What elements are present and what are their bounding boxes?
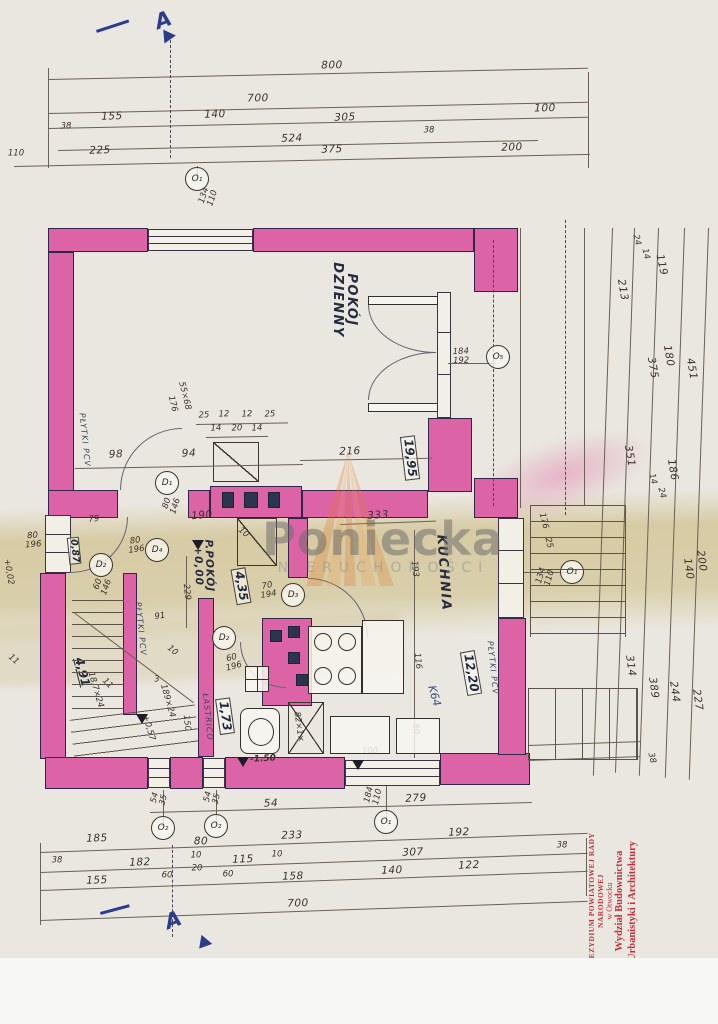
dimension-line <box>48 102 588 114</box>
plan-label: 54 35 <box>150 792 170 807</box>
plan-label: 227 <box>690 689 704 712</box>
wall <box>170 757 203 789</box>
plan-label: 14 <box>639 248 651 261</box>
sink <box>245 666 269 692</box>
plan-label: 800 <box>321 60 343 72</box>
plan-label: 14 <box>251 424 262 434</box>
plan-label: 54 <box>264 798 279 810</box>
porch-steps <box>528 688 638 760</box>
plan-label: 184 192 <box>453 348 470 367</box>
camscanner-footer: CS Zeskanowane w CamScanner <box>0 958 718 1024</box>
official-stamp: PREZYDIUM POWIATOWEJ RADY NARODOWEJ w Ot… <box>588 821 648 981</box>
plan-label: 91 <box>154 612 166 623</box>
stove-burner-icon <box>338 667 356 685</box>
plan-label: 1,73 <box>215 697 235 734</box>
plan-label: 54 35 <box>203 791 223 806</box>
plan-label: 186 <box>665 458 680 481</box>
plan-label: +0,02 <box>1 558 15 585</box>
stamp-line-4: Urbanistyki i Architektury <box>627 821 639 981</box>
wall <box>440 753 530 785</box>
kitchen-table <box>330 716 390 754</box>
plan-label: PŁYTKI PCV <box>485 641 499 696</box>
dimension-line <box>40 901 588 921</box>
dimension-line <box>40 833 588 853</box>
opening-symbol: O₁ <box>374 810 398 834</box>
opening-symbol: D₁ <box>155 471 179 495</box>
opening-symbol: D₂ <box>89 553 113 577</box>
chimney-flue <box>244 492 258 508</box>
stove-burner-icon <box>314 667 332 685</box>
chimney-flue <box>270 630 282 642</box>
kitchen-counter <box>362 620 404 694</box>
plan-label: 200 <box>501 142 523 154</box>
stove <box>308 626 362 694</box>
opening-symbol: O₂ <box>151 816 175 840</box>
plan-label: 192 <box>448 827 470 839</box>
opening-symbol: D₄ <box>145 538 169 562</box>
opening-symbol: O₅ <box>486 345 510 369</box>
plan-label: -1.50 <box>250 754 276 765</box>
dimension-line <box>206 436 268 438</box>
wall <box>428 418 472 492</box>
chimney-flue <box>288 652 300 664</box>
door-swing-arc <box>368 352 436 400</box>
dimension-line <box>40 853 588 873</box>
kitchen-table-2 <box>396 718 440 754</box>
plan-label: 12 <box>241 410 252 420</box>
plan-label: 4,35 <box>231 567 252 605</box>
plan-label: 80 196 <box>127 536 146 556</box>
plan-label: 140 <box>381 865 403 877</box>
plan-label: 25 <box>198 411 209 421</box>
plan-label: PŁYTKI PCV <box>77 413 91 468</box>
wall <box>123 573 137 715</box>
plan-label: 351 <box>622 444 637 467</box>
plan-label: 60 196 <box>223 652 243 674</box>
stove-burner-icon <box>314 633 332 651</box>
plan-label: 229 <box>181 583 192 600</box>
wall <box>48 252 74 514</box>
plan-label: 140 <box>681 558 695 581</box>
plan-label: 10 <box>165 644 179 658</box>
plan-label: 116 <box>412 652 423 669</box>
plan-label: 100 <box>534 103 556 115</box>
plan-label: 115 <box>232 854 254 866</box>
dimension-line <box>48 117 588 129</box>
dimension-line-vertical <box>493 240 495 506</box>
chimney-flue <box>222 492 234 508</box>
plan-label: 12,20 <box>460 650 482 696</box>
plan-label: 60 146 <box>92 575 115 597</box>
plan-label: 80 146 <box>161 494 183 515</box>
plan-label: 200 <box>694 550 708 573</box>
plan-label: 225 <box>89 145 111 157</box>
plan-label: 190 <box>191 509 213 522</box>
plan-label: 25 <box>264 410 275 420</box>
plan-label: 10 <box>272 850 283 859</box>
door-swing-arc <box>368 305 436 353</box>
plan-label: 213 <box>615 278 630 301</box>
plan-label: 38 <box>424 126 435 135</box>
plan-label: 98 <box>109 449 124 461</box>
plan-label: 244 <box>667 681 681 704</box>
stamp-line-1: PREZYDIUM POWIATOWEJ RADY NARODOWEJ <box>588 821 605 981</box>
plan-label: 314 <box>623 655 637 678</box>
plan-label: POKÓJ DZIENNY <box>330 262 358 338</box>
opening-symbol: O₂ <box>204 814 228 838</box>
plan-label: K64 <box>425 684 442 708</box>
plan-label: 60 <box>162 871 173 880</box>
chimney-flue <box>268 492 280 508</box>
plan-label: 38 <box>61 122 72 131</box>
dimension-line <box>150 802 532 813</box>
plan-label: P.POKÓJ +0,00 <box>191 539 215 593</box>
plan-label: 122 <box>458 860 480 872</box>
opening-symbol: O₁ <box>185 167 209 191</box>
toilet <box>240 708 280 754</box>
plan-label: 38 <box>557 841 568 850</box>
plan-label: 700 <box>247 93 269 105</box>
wall <box>253 228 474 252</box>
chimney-flue <box>296 674 308 686</box>
plan-label: 11 <box>6 653 20 667</box>
dimension-line <box>48 68 588 80</box>
plan-label: 184 110 <box>363 786 385 806</box>
plan-label: 279 <box>405 793 427 805</box>
plan-label: 700 <box>287 898 309 910</box>
plan-label: 305 <box>334 112 356 124</box>
wall <box>40 573 66 759</box>
window <box>437 292 451 418</box>
level-marker-icon <box>352 760 364 770</box>
plan-label: 233 <box>281 830 303 842</box>
plan-label: 38 <box>52 856 63 865</box>
plan-label: 3 <box>154 675 160 685</box>
wall <box>48 490 118 518</box>
plan-label: 79 <box>88 515 100 525</box>
dimension-line-vertical <box>520 228 521 508</box>
plan-label: 110 <box>8 149 24 158</box>
dimension-line-vertical <box>170 40 172 158</box>
plan-label: 182 <box>129 857 151 869</box>
door-leaf <box>368 296 438 305</box>
stamp-line-2: w Otwocku <box>605 821 614 981</box>
plan-label: 20 <box>192 864 203 873</box>
plan-label: 10 <box>191 851 202 860</box>
window <box>203 758 225 788</box>
dimension-line-vertical <box>588 72 589 168</box>
dimension-line-vertical <box>40 843 41 925</box>
scanned-floorplan-page: 8007001001551403053852438110225375200134… <box>0 0 718 1024</box>
dimension-line <box>40 871 588 891</box>
toilet-bowl-icon <box>248 718 274 746</box>
level-marker-icon <box>237 757 249 767</box>
stove-burner-icon <box>338 633 356 651</box>
dimension-line <box>75 464 303 469</box>
stamp-line-3: Wydział Budownictwa <box>614 821 626 981</box>
plan-label: 451 <box>684 357 699 380</box>
dimension-line-vertical <box>565 220 567 515</box>
plan-label: 375 <box>645 356 660 379</box>
crossed-box <box>213 442 259 482</box>
plan-label: 38 <box>645 752 657 765</box>
wall <box>498 618 526 755</box>
plan-label: 94 <box>182 448 197 460</box>
door-leaf <box>368 403 438 412</box>
plan-label: 80 <box>194 836 208 847</box>
staircase-hatch <box>72 600 124 712</box>
exterior-steps <box>530 505 626 637</box>
plan-label: 60 <box>223 870 234 879</box>
plan-label: 158 <box>282 871 304 883</box>
opening-symbol: D₂ <box>212 626 236 650</box>
plan-label: 307 <box>402 847 424 859</box>
plan-label: 14 <box>646 473 658 486</box>
wall <box>48 228 148 252</box>
plan-label: 140 <box>204 109 226 121</box>
plan-label: 524 <box>281 133 303 145</box>
plan-label: 155 <box>101 111 123 123</box>
dimension-line-vertical <box>584 228 585 506</box>
chimney-flue <box>288 626 300 638</box>
window <box>148 229 253 251</box>
plan-label: 389 <box>646 677 660 700</box>
plan-label: 180 <box>661 344 676 367</box>
plan-label: 185 <box>86 833 108 845</box>
plan-label: 24 <box>630 234 642 247</box>
plan-label: 176 <box>166 395 179 413</box>
plan-label: 155 <box>86 875 108 887</box>
watermark-brand: Poniecka <box>262 512 502 566</box>
plan-label: 12 <box>218 410 229 420</box>
plan-label: 20 <box>231 424 242 434</box>
plan-label: 24 <box>655 487 667 500</box>
plan-label: 70 194 <box>258 581 277 602</box>
watermark-subtitle: NIERUCHOMOŚCI <box>276 560 491 576</box>
wall <box>474 228 518 292</box>
plan-label: 80 196 <box>24 531 42 551</box>
plan-label: 14 <box>210 424 221 434</box>
window <box>148 758 170 788</box>
plan-label: 375 <box>321 144 343 156</box>
dimension-line-vertical <box>48 68 49 168</box>
